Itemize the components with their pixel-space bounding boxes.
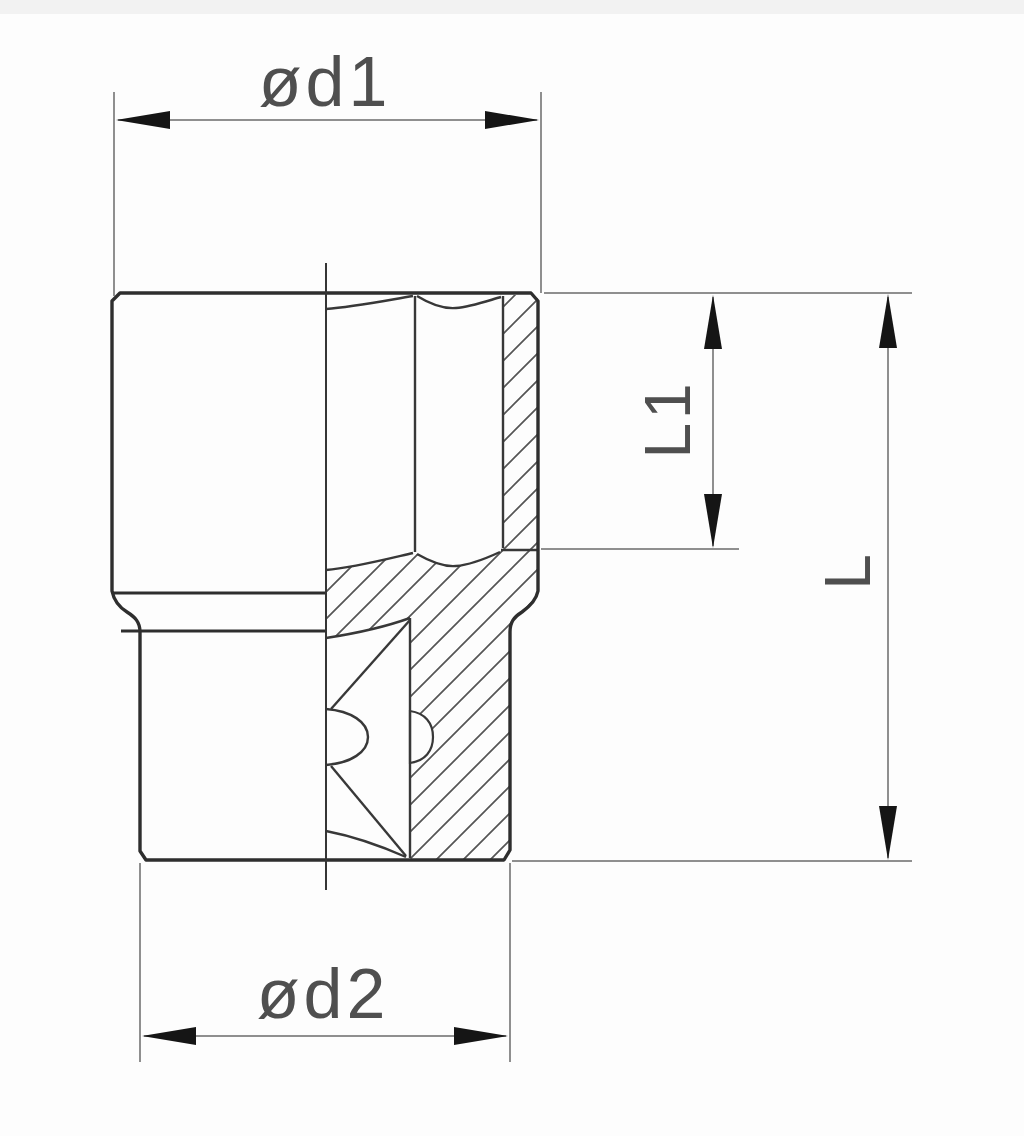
dimension-l1: L1 xyxy=(541,293,912,549)
dimension-label-d2: ød2 xyxy=(257,955,390,1033)
scan-artifact-band xyxy=(0,0,1024,14)
dimension-label-l1: L1 xyxy=(632,379,704,458)
engineering-drawing-canvas: ød1 ød2 L1 L xyxy=(0,0,1024,1136)
dimension-label-d1: ød1 xyxy=(259,43,392,121)
dimension-d2: ød2 xyxy=(140,863,510,1062)
arrowhead-right xyxy=(454,1027,508,1045)
arrowhead-left xyxy=(142,1027,196,1045)
dimension-d1: ød1 xyxy=(114,43,541,296)
dimension-label-l: L xyxy=(812,550,884,590)
section-hatch-region xyxy=(326,295,538,860)
arrowhead-up xyxy=(879,294,897,348)
arrowhead-down xyxy=(879,806,897,860)
arrowhead-up xyxy=(704,295,722,349)
arrowhead-left xyxy=(116,111,170,129)
detent-ball-recess xyxy=(326,709,368,765)
arrowhead-right xyxy=(485,111,539,129)
drawing-page: ød1 ød2 L1 L xyxy=(0,0,1024,1136)
arrowhead-down xyxy=(704,494,722,548)
